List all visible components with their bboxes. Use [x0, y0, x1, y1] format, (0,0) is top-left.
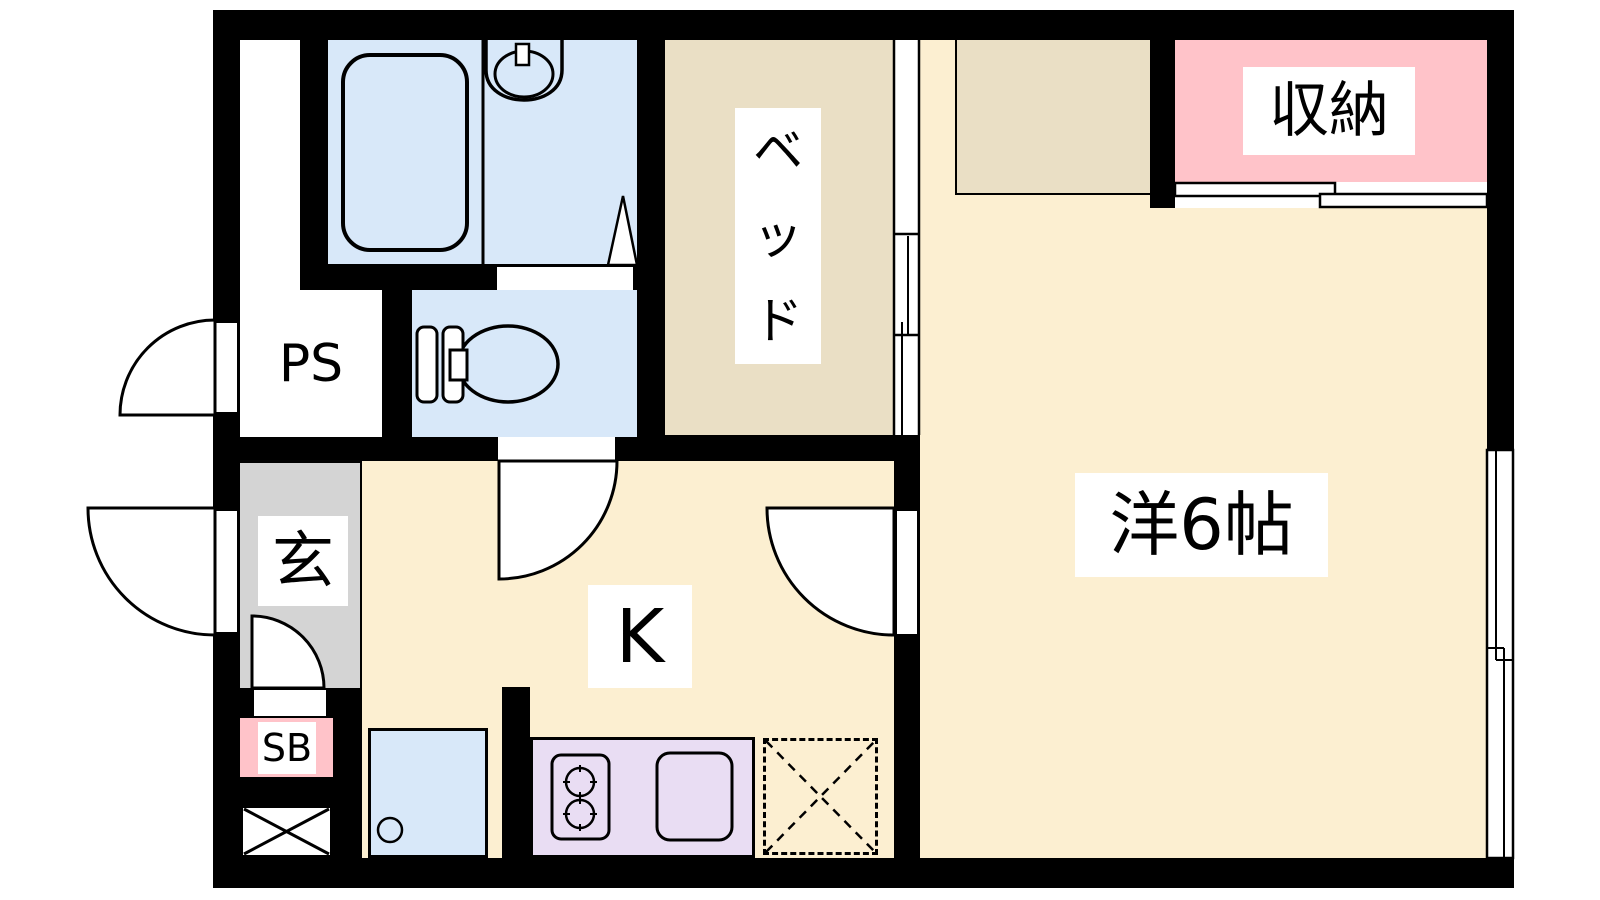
bed-label: ベ ッ ド: [735, 108, 821, 364]
door-swing-entrance-exterior: [88, 508, 215, 635]
refrigerator-space: [763, 738, 878, 855]
kitchen-counter: [530, 737, 755, 858]
entrance-label: 玄: [258, 516, 348, 606]
washing-machine-pan: [368, 728, 488, 858]
entrance-door-opening: [252, 688, 328, 718]
floorplan: PS 玄 SB K ベ ッ ド 収納 洋6帖: [0, 0, 1600, 900]
meter-box: [240, 805, 333, 858]
exterior-door-leaf-upper: [213, 320, 240, 415]
door-swing-ps: [120, 320, 215, 415]
toilet-room: [412, 290, 637, 437]
kitchen-counter-wall: [502, 687, 530, 858]
bed-alcove: [955, 40, 1150, 195]
western-room-label: 洋6帖: [1075, 473, 1328, 577]
bed-label-char-1: ベ: [753, 126, 803, 176]
entrance-exterior-door-leaf: [213, 508, 240, 635]
kitchen-room-door-leaf: [894, 508, 920, 637]
toilet-door-opening: [498, 437, 615, 461]
bed-label-char-3: ド: [753, 296, 803, 346]
pipe-space-upper: [240, 40, 300, 290]
storage-label: 収納: [1243, 67, 1415, 155]
storage-partition-wall: [1150, 40, 1175, 208]
shoe-box-label: SB: [258, 722, 316, 774]
kitchen-label: K: [588, 585, 692, 688]
bed-label-char-2: ッ: [753, 211, 803, 261]
pipe-space-label: PS: [270, 332, 352, 396]
bathroom: [328, 40, 637, 264]
